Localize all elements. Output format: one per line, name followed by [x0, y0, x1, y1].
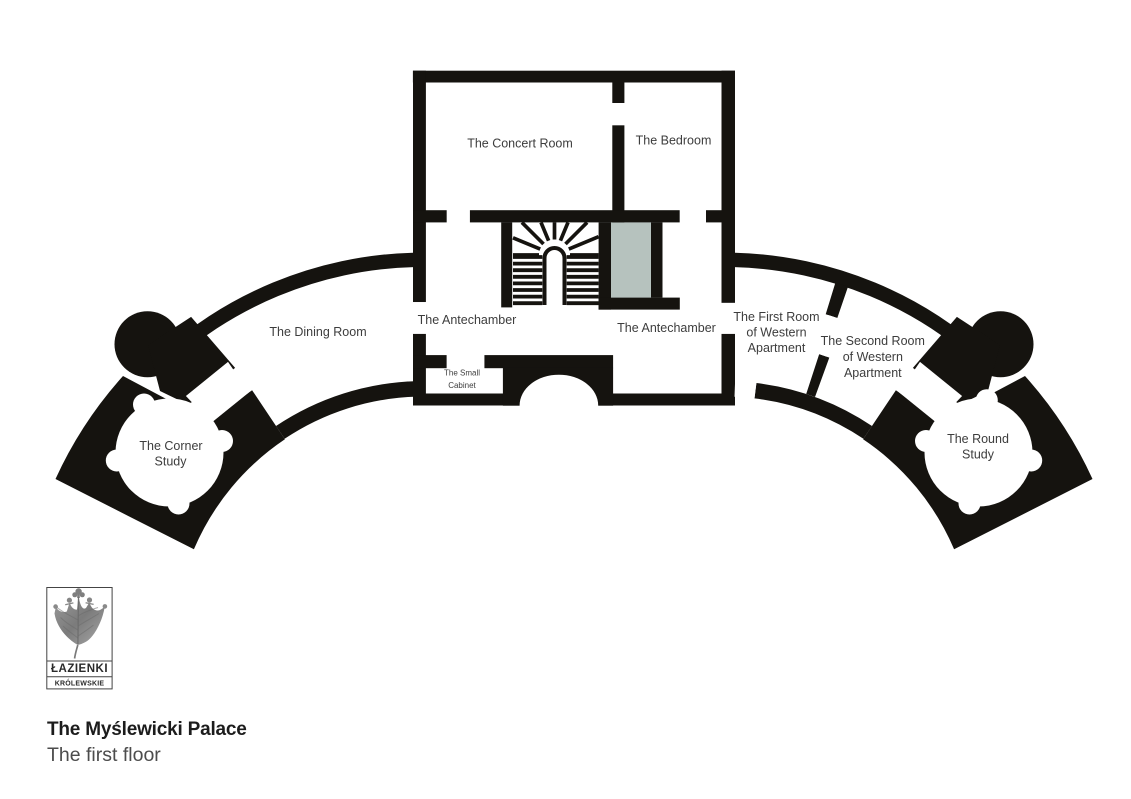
svg-text:Cabinet: Cabinet	[448, 381, 476, 390]
svg-text:ŁAZIENKI: ŁAZIENKI	[51, 663, 108, 675]
svg-text:Study: Study	[155, 455, 188, 469]
svg-text:The Antechamber: The Antechamber	[418, 313, 517, 327]
svg-text:The Bedroom: The Bedroom	[636, 134, 712, 148]
svg-text:Apartment: Apartment	[844, 366, 902, 380]
svg-text:of Western: of Western	[843, 350, 903, 364]
svg-text:of Western: of Western	[746, 326, 806, 340]
svg-text:The Corner: The Corner	[139, 439, 202, 453]
svg-text:The Concert Room: The Concert Room	[467, 137, 573, 151]
svg-text:Apartment: Apartment	[748, 341, 806, 355]
svg-text:The Round: The Round	[947, 432, 1009, 446]
svg-text:The First Room: The First Room	[733, 310, 819, 324]
svg-text:The Second Room: The Second Room	[821, 334, 925, 348]
svg-text:KRÓLEWSKIE: KRÓLEWSKIE	[55, 679, 105, 688]
svg-text:The Antechamber: The Antechamber	[617, 321, 716, 335]
svg-text:Study: Study	[962, 448, 995, 462]
svg-text:The Myślewicki Palace: The Myślewicki Palace	[47, 719, 247, 740]
svg-text:The first floor: The first floor	[47, 744, 161, 766]
svg-text:The Small: The Small	[444, 369, 480, 378]
svg-text:The Dining Room: The Dining Room	[269, 325, 366, 339]
